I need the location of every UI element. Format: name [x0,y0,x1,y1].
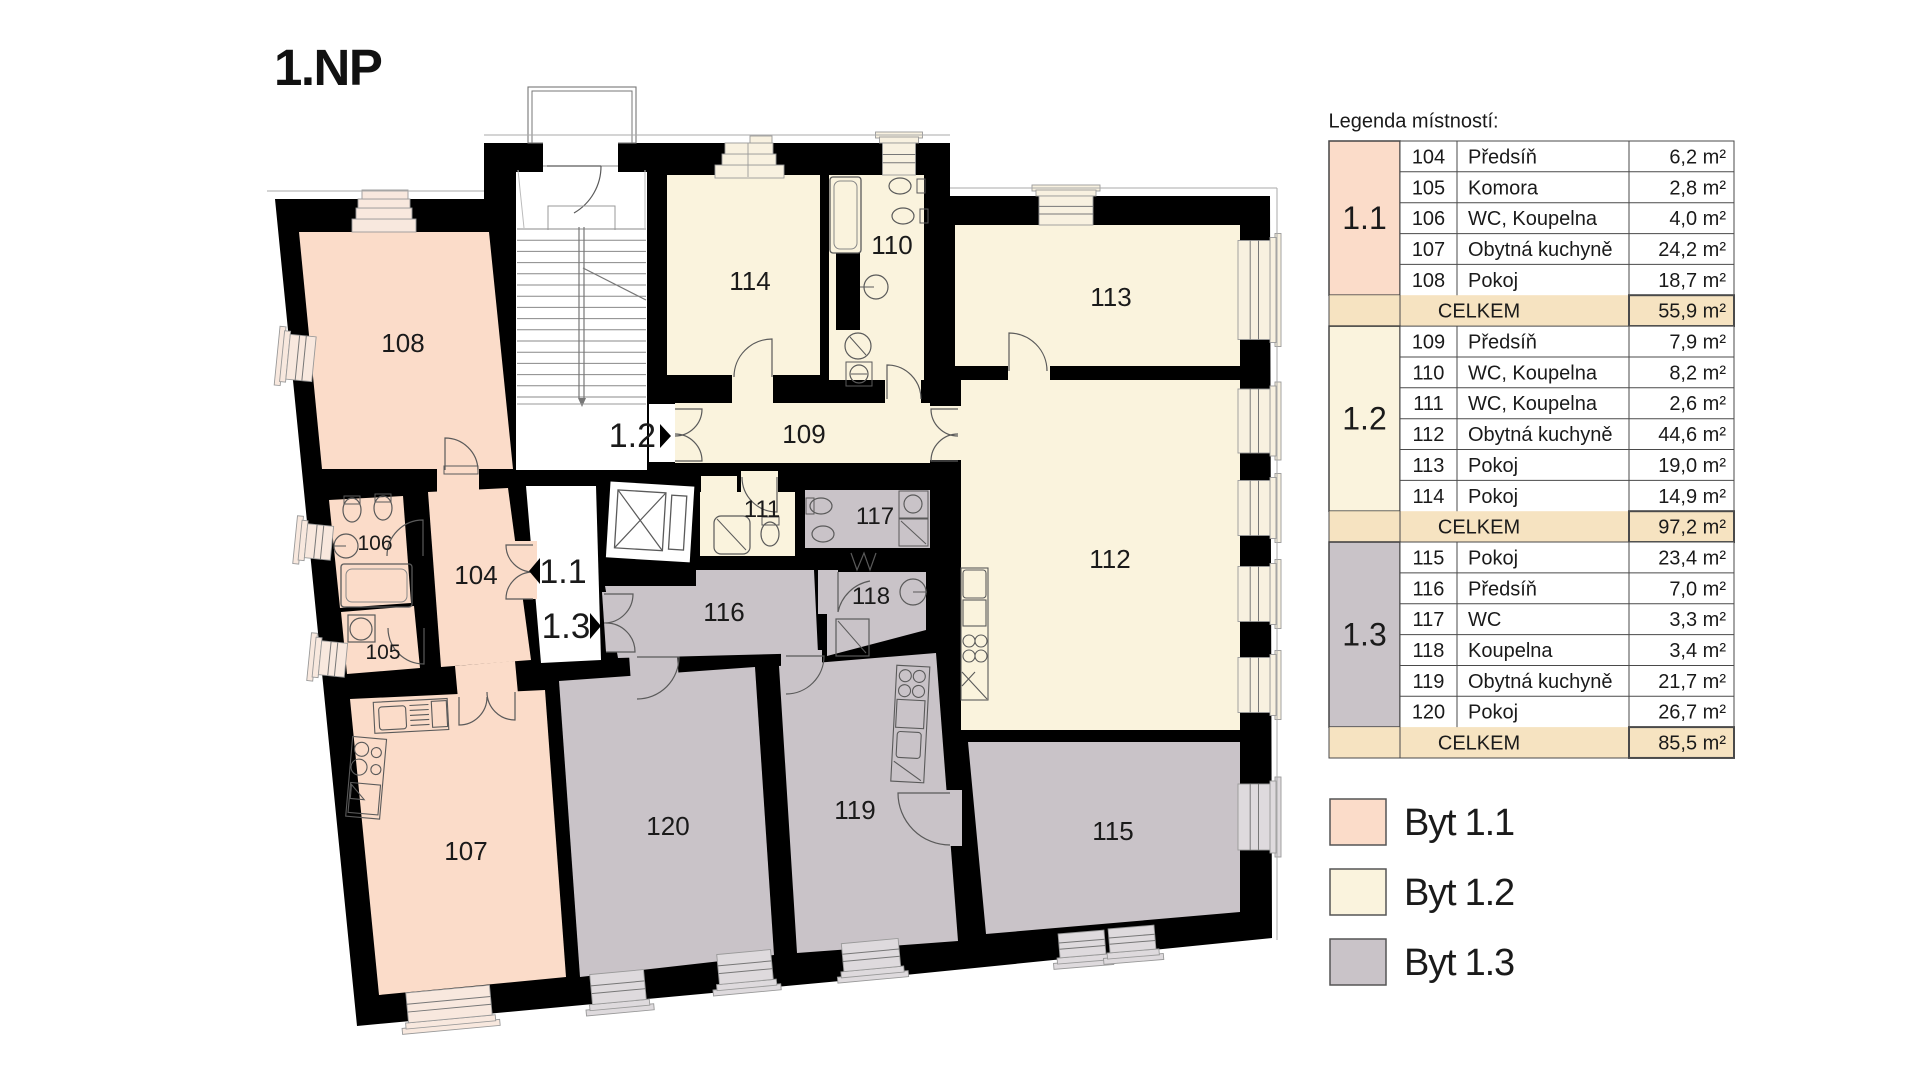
svg-text:114: 114 [729,266,770,296]
svg-text:44,6 m²: 44,6 m² [1658,424,1726,446]
svg-text:55,9 m²: 55,9 m² [1658,301,1726,323]
svg-text:24,2 m²: 24,2 m² [1658,239,1726,261]
svg-text:6,2 m²: 6,2 m² [1669,146,1726,168]
svg-text:Koupelna: Koupelna [1468,640,1553,662]
svg-text:112: 112 [1089,544,1130,574]
svg-text:19,0 m²: 19,0 m² [1658,455,1726,477]
svg-text:Obytná kuchyně: Obytná kuchyně [1468,671,1613,693]
svg-text:118: 118 [1413,640,1445,662]
svg-text:1.1: 1.1 [539,553,586,591]
svg-text:7,0 m²: 7,0 m² [1669,578,1726,600]
svg-text:Byt 1.3: Byt 1.3 [1404,942,1514,984]
svg-text:Pokoj: Pokoj [1468,455,1518,477]
svg-text:CELKEM: CELKEM [1438,301,1520,323]
svg-text:WC, Koupelna: WC, Koupelna [1468,208,1598,230]
svg-text:113: 113 [1413,455,1445,477]
svg-text:110: 110 [871,230,912,260]
svg-text:111: 111 [1413,393,1443,415]
svg-text:108: 108 [1412,270,1445,292]
svg-text:1.2: 1.2 [1342,401,1386,437]
svg-text:1.3: 1.3 [1342,617,1386,653]
svg-text:Obytná kuchyně: Obytná kuchyně [1468,424,1613,446]
svg-text:CELKEM: CELKEM [1438,733,1520,755]
svg-text:108: 108 [381,328,424,358]
svg-text:Předsíň: Předsíň [1468,146,1537,168]
svg-text:117: 117 [1413,609,1445,631]
svg-text:7,9 m²: 7,9 m² [1669,332,1726,354]
svg-text:106: 106 [1412,208,1445,230]
svg-text:1.2: 1.2 [609,417,656,455]
svg-text:1.NP: 1.NP [274,39,382,96]
svg-text:105: 105 [365,641,400,664]
svg-text:WC, Koupelna: WC, Koupelna [1468,393,1598,415]
svg-text:Komora: Komora [1468,177,1539,199]
svg-text:107: 107 [444,836,487,866]
svg-text:Legenda místností:: Legenda místností: [1329,111,1499,133]
svg-text:105: 105 [1412,177,1445,199]
svg-text:119: 119 [1413,671,1445,693]
svg-text:118: 118 [852,583,890,610]
svg-text:115: 115 [1092,816,1133,846]
svg-text:110: 110 [1413,362,1445,384]
svg-text:3,4 m²: 3,4 m² [1669,640,1726,662]
svg-text:119: 119 [834,795,875,825]
svg-text:1.1: 1.1 [1342,200,1386,236]
svg-text:CELKEM: CELKEM [1438,517,1520,539]
svg-text:14,9 m²: 14,9 m² [1658,486,1726,508]
svg-text:Pokoj: Pokoj [1468,548,1518,570]
svg-text:109: 109 [1412,332,1445,354]
svg-text:104: 104 [454,560,497,590]
svg-text:Obytná kuchyně: Obytná kuchyně [1468,239,1613,261]
svg-text:2,8 m²: 2,8 m² [1669,177,1726,199]
svg-text:115: 115 [1413,548,1445,570]
svg-text:18,7 m²: 18,7 m² [1658,270,1726,292]
svg-text:Byt 1.2: Byt 1.2 [1404,872,1514,914]
svg-text:3,3 m²: 3,3 m² [1669,609,1726,631]
svg-text:114: 114 [1413,486,1445,508]
svg-text:111: 111 [744,496,780,523]
svg-text:120: 120 [1412,702,1445,724]
svg-text:Předsíň: Předsíň [1468,332,1537,354]
svg-text:120: 120 [646,811,689,841]
svg-text:116: 116 [703,597,744,627]
svg-text:Pokoj: Pokoj [1468,702,1518,724]
svg-text:109: 109 [782,419,825,449]
svg-text:113: 113 [1090,282,1131,312]
svg-text:104: 104 [1412,146,1445,168]
svg-text:Pokoj: Pokoj [1468,486,1518,508]
svg-text:107: 107 [1412,239,1445,261]
svg-text:116: 116 [1413,578,1445,600]
svg-text:23,4 m²: 23,4 m² [1658,548,1726,570]
svg-text:8,2 m²: 8,2 m² [1669,362,1726,384]
svg-text:21,7 m²: 21,7 m² [1658,671,1726,693]
svg-text:WC, Koupelna: WC, Koupelna [1468,362,1598,384]
svg-text:106: 106 [357,532,392,555]
svg-text:4,0 m²: 4,0 m² [1669,208,1726,230]
svg-text:Předsíň: Předsíň [1468,578,1537,600]
svg-text:WC: WC [1468,609,1501,631]
svg-text:2,6 m²: 2,6 m² [1669,393,1726,415]
svg-text:Pokoj: Pokoj [1468,270,1518,292]
svg-text:85,5 m²: 85,5 m² [1658,733,1726,755]
svg-text:117: 117 [856,503,894,530]
svg-text:97,2 m²: 97,2 m² [1658,517,1726,539]
svg-text:112: 112 [1413,424,1445,446]
svg-text:Byt 1.1: Byt 1.1 [1404,802,1514,844]
svg-text:1.3: 1.3 [542,607,591,646]
svg-text:26,7 m²: 26,7 m² [1658,702,1726,724]
